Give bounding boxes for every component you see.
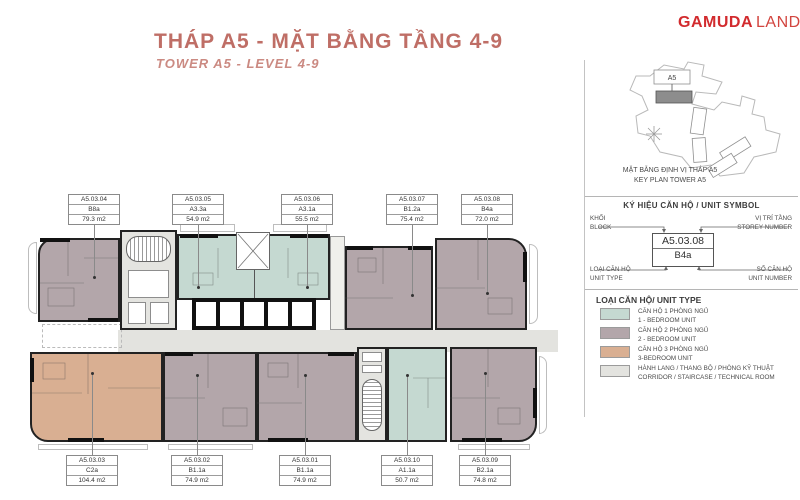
unit-type: B4a	[462, 204, 512, 214]
unit-symbol-example-type: B4a	[653, 249, 713, 262]
unit-A5.03.08-B4a	[435, 238, 527, 330]
legend-corridor-vi: HÀNH LANG / THANG BỘ / PHÒNG KỸ THUẬT	[638, 364, 800, 373]
unit-label-A5.03.02: A5.03.02 B1.1a 74.9 m2	[171, 455, 223, 486]
unit-label-A5.03.03: A5.03.03 C2a 104.4 m2	[66, 455, 118, 486]
unit-label-A5.03.01: A5.03.01 B1.1a 74.9 m2	[279, 455, 331, 486]
technical-room-top-2	[128, 302, 146, 324]
key-plan-caption-en: KEY PLAN TOWER A5	[586, 176, 754, 186]
sidebar-divider-1	[585, 196, 798, 197]
leader-A5.03.02	[197, 375, 198, 455]
unit-label-A5.03.08: A5.03.08 B4a 72.0 m2	[461, 194, 513, 225]
unit-label-A5.03.04: A5.03.04 B8a 79.3 m2	[68, 194, 120, 225]
key-plan-caption-vi: MẶT BẰNG ĐỊNH VỊ THÁP A5	[586, 166, 754, 176]
unit-code: A5.03.10	[382, 456, 432, 465]
page-subtitle: TOWER A5 - LEVEL 4-9	[156, 56, 320, 71]
unit-type: B2.1a	[460, 465, 510, 475]
technical-room-top	[128, 270, 169, 298]
sidebar-divider-vertical	[584, 60, 585, 417]
balcony-ledge-left-top	[28, 242, 37, 314]
legend-1br-en: 1 - BEDROOM UNIT	[638, 316, 800, 325]
symbol-label-unit-type-vi: LOẠI CĂN HỘ	[590, 266, 631, 275]
elevator-cell	[268, 302, 288, 326]
unit-type: A1.1a	[382, 465, 432, 475]
leader-A5.03.05	[198, 222, 199, 288]
leader-A5.03.01	[305, 375, 306, 455]
balcony-ledge-bottom-1	[38, 444, 148, 450]
floor-plan: A5.03.04 B8a 79.3 m2 A5.03.05 A3.3a 54.9…	[28, 188, 573, 488]
unit-label-A5.03.10: A5.03.10 A1.1a 50.7 m2	[381, 455, 433, 486]
unit-code: A5.03.08	[462, 195, 512, 204]
legend-swatch-corridor	[600, 365, 630, 377]
legend-swatch-1br	[600, 308, 630, 320]
unit-code: A5.03.05	[173, 195, 223, 204]
symbol-label-unit-type: LOẠI CĂN HỘ UNIT TYPE	[590, 266, 631, 284]
symbol-label-block: KHỐI BLOCK	[590, 215, 611, 233]
leader-A5.03.04	[94, 222, 95, 278]
unit-code: A5.03.03	[67, 456, 117, 465]
unit-label-A5.03.07: A5.03.07 B1.2a 75.4 m2	[386, 194, 438, 225]
symbol-label-unit-number: SỐ CĂN HỘ UNIT NUMBER	[700, 266, 792, 284]
unit-code: A5.03.01	[280, 456, 330, 465]
brand-logo-light: LAND	[756, 14, 800, 31]
legend-3br-en: 3-BEDROOM UNIT	[638, 354, 800, 363]
balcony-ledge-bottom-3	[458, 444, 530, 450]
legend-3br-vi: CĂN HỘ 3 PHÒNG NGỦ	[638, 345, 800, 354]
leader-A5.03.08	[487, 222, 488, 294]
key-plan-tower-label: A5	[668, 75, 677, 82]
unit-A5.03.09-B2.1a	[450, 347, 537, 442]
unit-type: B1.1a	[280, 465, 330, 475]
page-title: THÁP A5 - MẶT BẰNG TẦNG 4-9	[154, 30, 503, 54]
brand-logo: GAMUDALAND	[678, 14, 800, 32]
staircase-core-top	[120, 230, 177, 330]
symbol-label-unit-number-en: UNIT NUMBER	[700, 275, 792, 284]
riser-shaft-strip	[330, 236, 345, 330]
unit-area: 79.3 m2	[69, 214, 119, 224]
unit-A5.03.02-B1.1a	[163, 352, 257, 442]
unit-area: 54.9 m2	[173, 214, 223, 224]
legend-swatch-3br	[600, 346, 630, 358]
leader-A5.03.10	[407, 375, 408, 455]
unit-type: A3.3a	[173, 204, 223, 214]
key-plan-caption: MẶT BẰNG ĐỊNH VỊ THÁP A5 KEY PLAN TOWER …	[586, 166, 754, 186]
unit-label-A5.03.06: A5.03.06 A3.1a 55.5 m2	[281, 194, 333, 225]
sidebar-divider-2	[585, 289, 798, 290]
leader-A5.03.03	[92, 373, 93, 455]
unit-area: 50.7 m2	[382, 475, 432, 485]
unit-code: A5.03.06	[282, 195, 332, 204]
legend-1br-vi: CĂN HỘ 1 PHÒNG NGỦ	[638, 307, 800, 316]
unit-symbol-example-code: A5.03.08	[653, 234, 713, 249]
unit-area: 75.4 m2	[387, 214, 437, 224]
symbol-label-storey-en: STOREY NUMBER	[700, 224, 792, 233]
elevator-cell	[220, 302, 240, 326]
unit-A5.03.10-A1.1a	[387, 347, 447, 442]
balcony-ledge-right-bottom	[539, 356, 547, 434]
staircase-core-bottom	[357, 347, 387, 442]
technical-room-top-3	[150, 302, 169, 324]
symbol-label-block-vi: KHỐI	[590, 215, 611, 224]
unit-A5.03.04-B8a	[38, 238, 120, 322]
unit-label-A5.03.09: A5.03.09 B2.1a 74.8 m2	[459, 455, 511, 486]
ac-ledge-left-dashed	[42, 324, 122, 348]
symbol-label-unit-type-en: UNIT TYPE	[590, 275, 631, 284]
leader-A5.03.06	[307, 222, 308, 288]
unit-area: 55.5 m2	[282, 214, 332, 224]
staircase-top-icon	[126, 236, 171, 262]
unit-type-heading: LOẠI CĂN HỘ/ UNIT TYPE	[596, 295, 701, 305]
balcony-ledge-right-top	[529, 244, 538, 324]
unit-code: A5.03.02	[172, 456, 222, 465]
unit-code: A5.03.07	[387, 195, 437, 204]
unit-type: C2a	[67, 465, 117, 475]
key-plan-tower-a5-highlight	[656, 91, 692, 103]
unit-type: B1.2a	[387, 204, 437, 214]
symbol-label-storey: VỊ TRÍ TẦNG STOREY NUMBER	[700, 215, 792, 233]
unit-symbol-heading: KÝ HIỆU CĂN HỘ / UNIT SYMBOL	[585, 201, 798, 210]
floor-plan-sheet: THÁP A5 - MẶT BẰNG TẦNG 4-9 TOWER A5 - L…	[0, 0, 800, 500]
technical-room-bottom-2	[362, 365, 382, 373]
unit-code: A5.03.09	[460, 456, 510, 465]
elevator-cell	[196, 302, 216, 326]
symbol-label-unit-number-vi: SỐ CĂN HỘ	[700, 266, 792, 275]
staircase-bottom-icon	[362, 379, 382, 431]
elevator-cell	[244, 302, 264, 326]
unit-type: A3.1a	[282, 204, 332, 214]
legend-2br-vi: CĂN HỘ 2 PHÒNG NGỦ	[638, 326, 800, 335]
unit-area: 74.8 m2	[460, 475, 510, 485]
balcony-ledge-bottom-2	[168, 444, 253, 450]
unit-A5.03.03-C2a	[30, 352, 163, 442]
unit-area: 74.9 m2	[280, 475, 330, 485]
unit-A5.03.01-B1.1a	[257, 352, 357, 442]
leader-A5.03.09	[485, 373, 486, 455]
unit-label-A5.03.05: A5.03.05 A3.3a 54.9 m2	[172, 194, 224, 225]
unit-code: A5.03.04	[69, 195, 119, 204]
elevator-bank	[192, 298, 316, 330]
technical-room-bottom	[362, 352, 382, 362]
elevator-cell	[292, 302, 312, 326]
legend-swatch-2br	[600, 327, 630, 339]
unit-A5.03.07-B1.2a	[345, 246, 433, 330]
symbol-label-block-en: BLOCK	[590, 224, 611, 233]
symbol-label-storey-vi: VỊ TRÍ TẦNG	[700, 215, 792, 224]
key-plan-drawing: A5	[592, 56, 796, 182]
shaft	[236, 232, 270, 270]
unit-area: 74.9 m2	[172, 475, 222, 485]
legend-2br-en: 2 - BEDROOM UNIT	[638, 335, 800, 344]
brand-logo-bold: GAMUDA	[678, 14, 753, 31]
unit-type: B1.1a	[172, 465, 222, 475]
legend-corridor-en: CORRIDOR / STAIRCASE / TECHNICAL ROOM	[638, 373, 800, 382]
leader-A5.03.07	[412, 222, 413, 296]
unit-area: 104.4 m2	[67, 475, 117, 485]
unit-symbol-example-box: A5.03.08 B4a	[652, 233, 714, 267]
unit-type: B8a	[69, 204, 119, 214]
unit-area: 72.0 m2	[462, 214, 512, 224]
